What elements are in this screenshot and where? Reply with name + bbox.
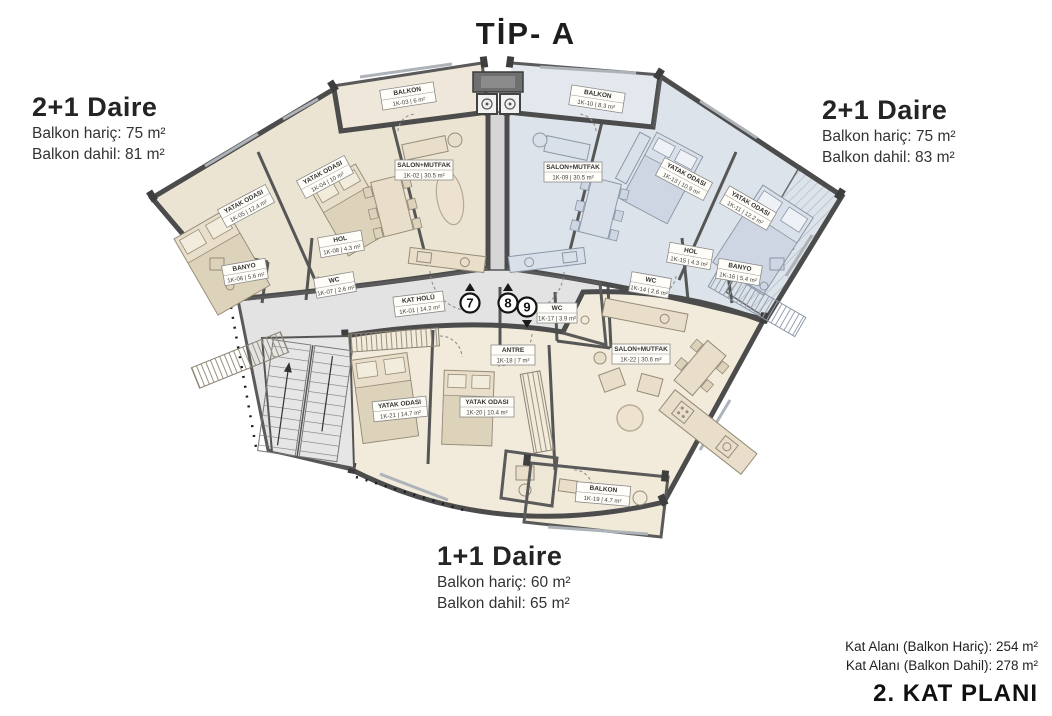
room-label-b-bed-a: YATAK ODASI1K-20 | 10.4 m² [460, 397, 514, 417]
svg-text:SALON+MUTFAK: SALON+MUTFAK [546, 164, 600, 171]
room-label-l-salon: SALON+MUTFAK1K-02 | 30.5 m² [395, 160, 453, 180]
svg-text:1K-17 | 3.9 m²: 1K-17 | 3.9 m² [538, 317, 576, 323]
svg-text:1K-22 | 30.6 m²: 1K-22 | 30.6 m² [620, 358, 661, 364]
room-label-b-wc: WC1K-17 | 3.9 m² [537, 303, 577, 323]
svg-text:SALON+MUTFAK: SALON+MUTFAK [614, 346, 668, 353]
svg-text:ANTRE: ANTRE [502, 347, 525, 354]
svg-text:1K-18 | 7 m²: 1K-18 | 7 m² [497, 359, 530, 365]
floor-plan: BALKON1K-03 | 6 m² SALON+MUTFAK1K-02 | 3… [0, 0, 1052, 716]
room-label-b-balkon: BALKON1K-19 | 4.7 m² [575, 482, 631, 507]
svg-text:7: 7 [466, 296, 473, 311]
svg-text:WC: WC [552, 305, 563, 312]
svg-text:SALON+MUTFAK: SALON+MUTFAK [397, 162, 451, 169]
svg-text:1K-02 | 30.5 m²: 1K-02 | 30.5 m² [403, 174, 444, 180]
room-label-b-antre: ANTRE1K-18 | 7 m² [491, 345, 535, 365]
room-label-b-salon: SALON+MUTFAK1K-22 | 30.6 m² [612, 344, 670, 364]
room-label-r-salon: SALON+MUTFAK1K-09 | 30.5 m² [544, 162, 602, 182]
svg-text:1K-20 | 10.4 m²: 1K-20 | 10.4 m² [466, 411, 507, 417]
machine-room [473, 72, 523, 92]
svg-text:1K-09 | 30.5 m²: 1K-09 | 30.5 m² [552, 176, 593, 182]
elevator-shaft [488, 112, 507, 270]
svg-text:9: 9 [523, 300, 530, 315]
svg-text:YATAK ODASI: YATAK ODASI [465, 399, 508, 406]
floor-plan-page: TİP- A 2+1 Daire Balkon hariç: 75 m² Bal… [0, 0, 1052, 716]
svg-text:8: 8 [504, 296, 511, 311]
elevators [477, 94, 520, 114]
